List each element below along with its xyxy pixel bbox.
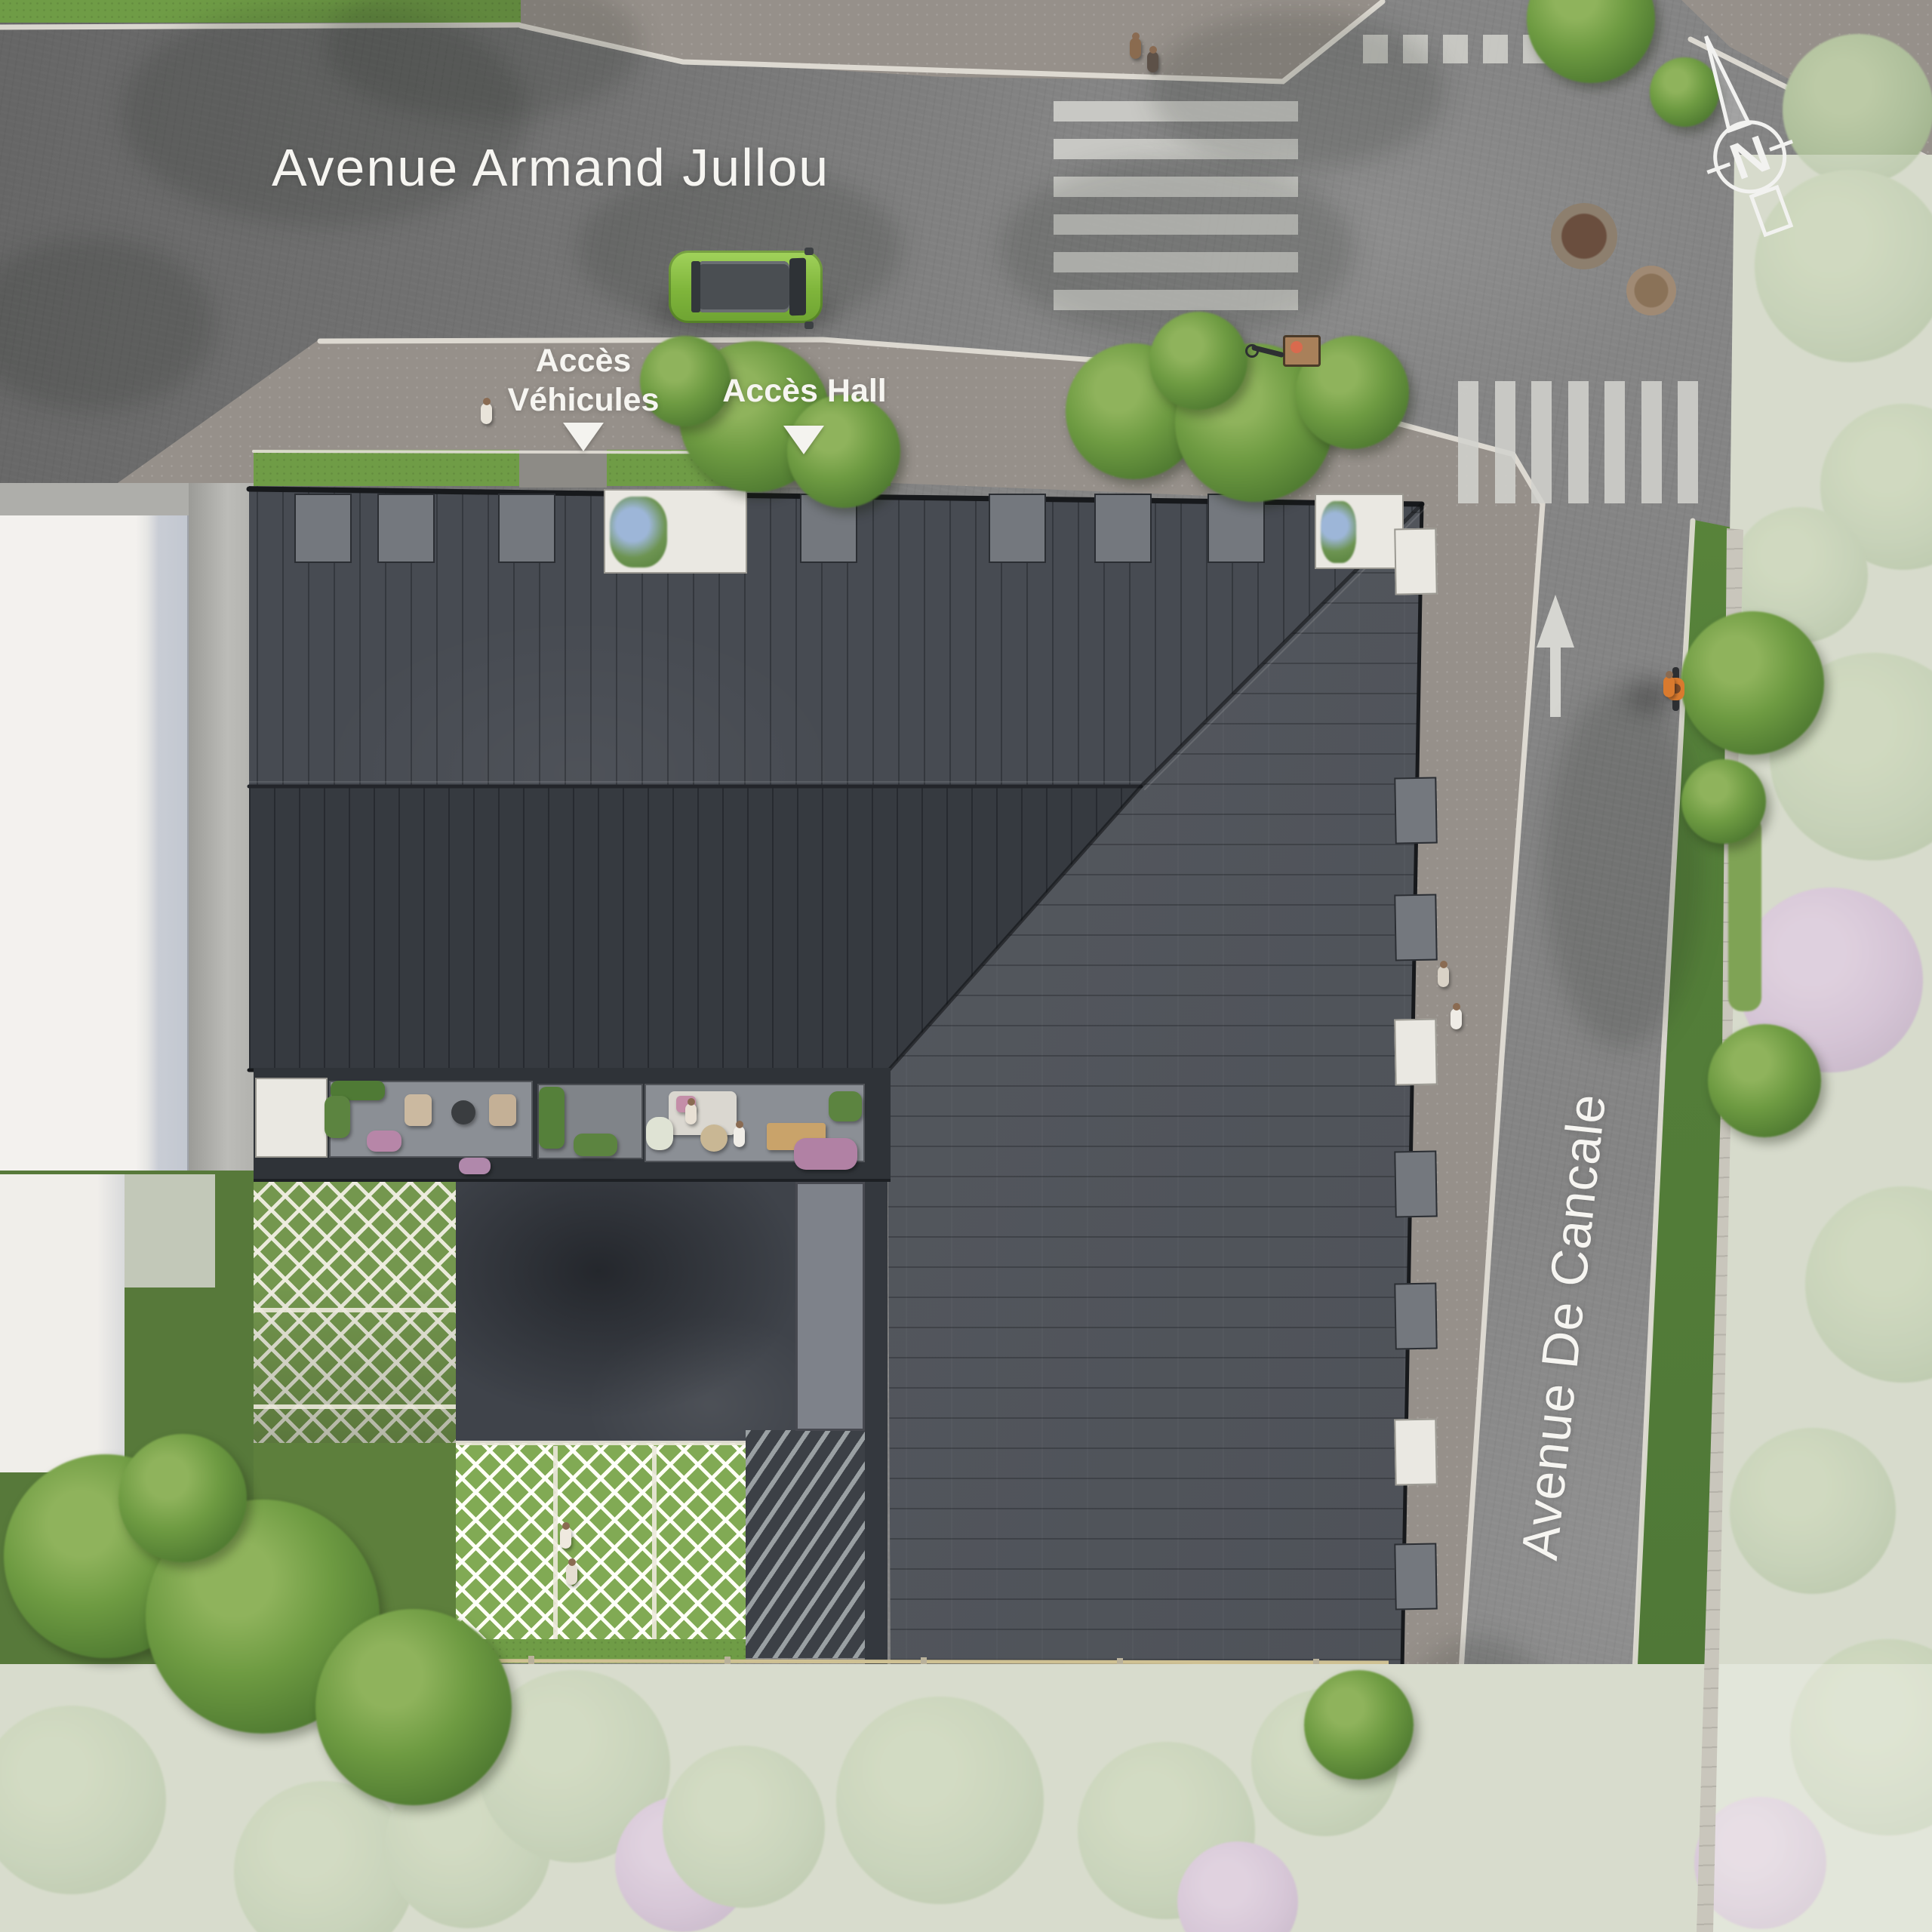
- white-building-annex: [125, 1174, 215, 1287]
- bike-cart: [1244, 329, 1327, 377]
- furniture-item: [405, 1094, 432, 1126]
- tree: [1681, 759, 1766, 844]
- road-arrow-shaft: [1550, 646, 1561, 717]
- tree: [1304, 1670, 1414, 1780]
- furniture-item: [459, 1158, 491, 1174]
- lattice-shade: [254, 1283, 456, 1444]
- pedestrian-head: [736, 1121, 743, 1128]
- roof-dormer: [377, 494, 435, 563]
- pedestrian-head: [562, 1522, 570, 1530]
- furniture-item: [829, 1091, 862, 1121]
- pedestrian: [560, 1527, 571, 1549]
- access-vehicles-line2: Véhicules: [508, 380, 660, 420]
- edge-balcony: [1394, 1419, 1438, 1486]
- manhole-cover: [1551, 203, 1617, 269]
- edge-panel: [1394, 777, 1438, 844]
- dash-square: [1483, 35, 1508, 63]
- pedestrian: [1663, 676, 1675, 697]
- furniture-item: [325, 1096, 350, 1138]
- edge-panel: [1394, 1151, 1438, 1218]
- tree: [1708, 1024, 1821, 1137]
- terrace-white: [255, 1078, 328, 1158]
- roof-dormer: [294, 494, 352, 563]
- parked-car: [664, 246, 827, 331]
- edge-balcony: [1394, 1019, 1438, 1086]
- furniture-item: [700, 1124, 728, 1152]
- tree: [315, 1609, 512, 1805]
- access-vehicles-label: Accès Véhicules: [508, 341, 660, 420]
- courtyard-east-wall: [865, 1182, 888, 1669]
- tree: [1681, 611, 1824, 755]
- tree-shadow: [1151, 11, 1445, 170]
- edge-balcony: [1394, 528, 1438, 595]
- pedestrian-head: [568, 1558, 576, 1566]
- lattice-lawn-south: [456, 1443, 746, 1641]
- crosswalk-stripe: [1641, 381, 1662, 503]
- edge-panel: [1394, 1543, 1438, 1611]
- pedestrian-head: [1666, 671, 1673, 678]
- roof-balcony-white: [1315, 494, 1404, 569]
- crosswalk-stripe: [1678, 381, 1698, 503]
- white-building-roof: [0, 515, 189, 1171]
- balcony-plants: [610, 497, 667, 568]
- access-vehicles-line1: Accès: [508, 341, 660, 380]
- edge-panel: [1394, 1283, 1438, 1350]
- pedestrian: [685, 1103, 697, 1124]
- vehicle-driveway: [519, 450, 607, 488]
- site-plan: Avenue Armand Jullou Avenue De Cancale A…: [0, 0, 1932, 1932]
- edge-panel: [1394, 894, 1438, 961]
- crosswalk-stripe: [1568, 381, 1589, 503]
- tree: [1149, 312, 1247, 410]
- pedestrian-head: [688, 1098, 695, 1106]
- pedestrian: [734, 1126, 745, 1147]
- road-arrow-head: [1537, 595, 1574, 648]
- compass-north-icon: N: [1636, 20, 1863, 261]
- roof-dormer: [989, 494, 1046, 563]
- access-vehicles-arrow-icon: [563, 423, 604, 451]
- pedestrian-head: [1149, 46, 1157, 54]
- courtyard-terrace-strip: [795, 1182, 865, 1431]
- furniture-item: [794, 1138, 857, 1170]
- roof-balcony-white: [604, 489, 747, 574]
- furniture-item: [646, 1117, 673, 1150]
- dash-square: [1443, 35, 1468, 63]
- tree-shadow: [1543, 687, 1702, 1049]
- furniture-item: [574, 1134, 617, 1156]
- hedge: [1728, 815, 1761, 1011]
- pedestrian: [1438, 966, 1449, 987]
- furniture-item: [367, 1131, 401, 1152]
- svg-text:N: N: [1723, 125, 1777, 191]
- pedestrian: [1130, 38, 1141, 59]
- tree-shadow: [1000, 158, 1355, 340]
- balcony-plants: [1321, 501, 1356, 563]
- tree: [118, 1434, 247, 1562]
- pedestrian-head: [1453, 1003, 1460, 1011]
- side-passage: [189, 483, 254, 1177]
- furniture-item: [489, 1094, 516, 1126]
- roof-dormer: [498, 494, 555, 563]
- access-hall-arrow-icon: [783, 426, 824, 454]
- pedestrian-head: [483, 398, 491, 405]
- crosswalk-stripe: [1531, 381, 1552, 503]
- access-hall-label: Accès Hall: [722, 373, 887, 410]
- roof-dormer: [1094, 494, 1152, 563]
- inner-courtyard: [456, 1182, 795, 1444]
- pedestrian: [1451, 1008, 1462, 1029]
- white-building-roof-2: [0, 1174, 125, 1472]
- furniture-item: [451, 1100, 475, 1124]
- street-label-top: Avenue Armand Jullou: [272, 137, 829, 198]
- manhole-cover: [1626, 266, 1676, 315]
- pedestrian: [1147, 51, 1158, 72]
- roof-dormer: [1207, 494, 1265, 563]
- pedestrian: [566, 1564, 577, 1585]
- crosswalk-stripe: [1495, 381, 1515, 503]
- crosswalk-stripe: [1604, 381, 1625, 503]
- pedestrian-head: [1440, 961, 1447, 968]
- pedestrian: [481, 403, 492, 424]
- pedestrian-head: [1132, 32, 1140, 40]
- furniture-item: [539, 1087, 565, 1149]
- cyclist: [1654, 664, 1700, 717]
- crosswalk-stripe: [1458, 381, 1478, 503]
